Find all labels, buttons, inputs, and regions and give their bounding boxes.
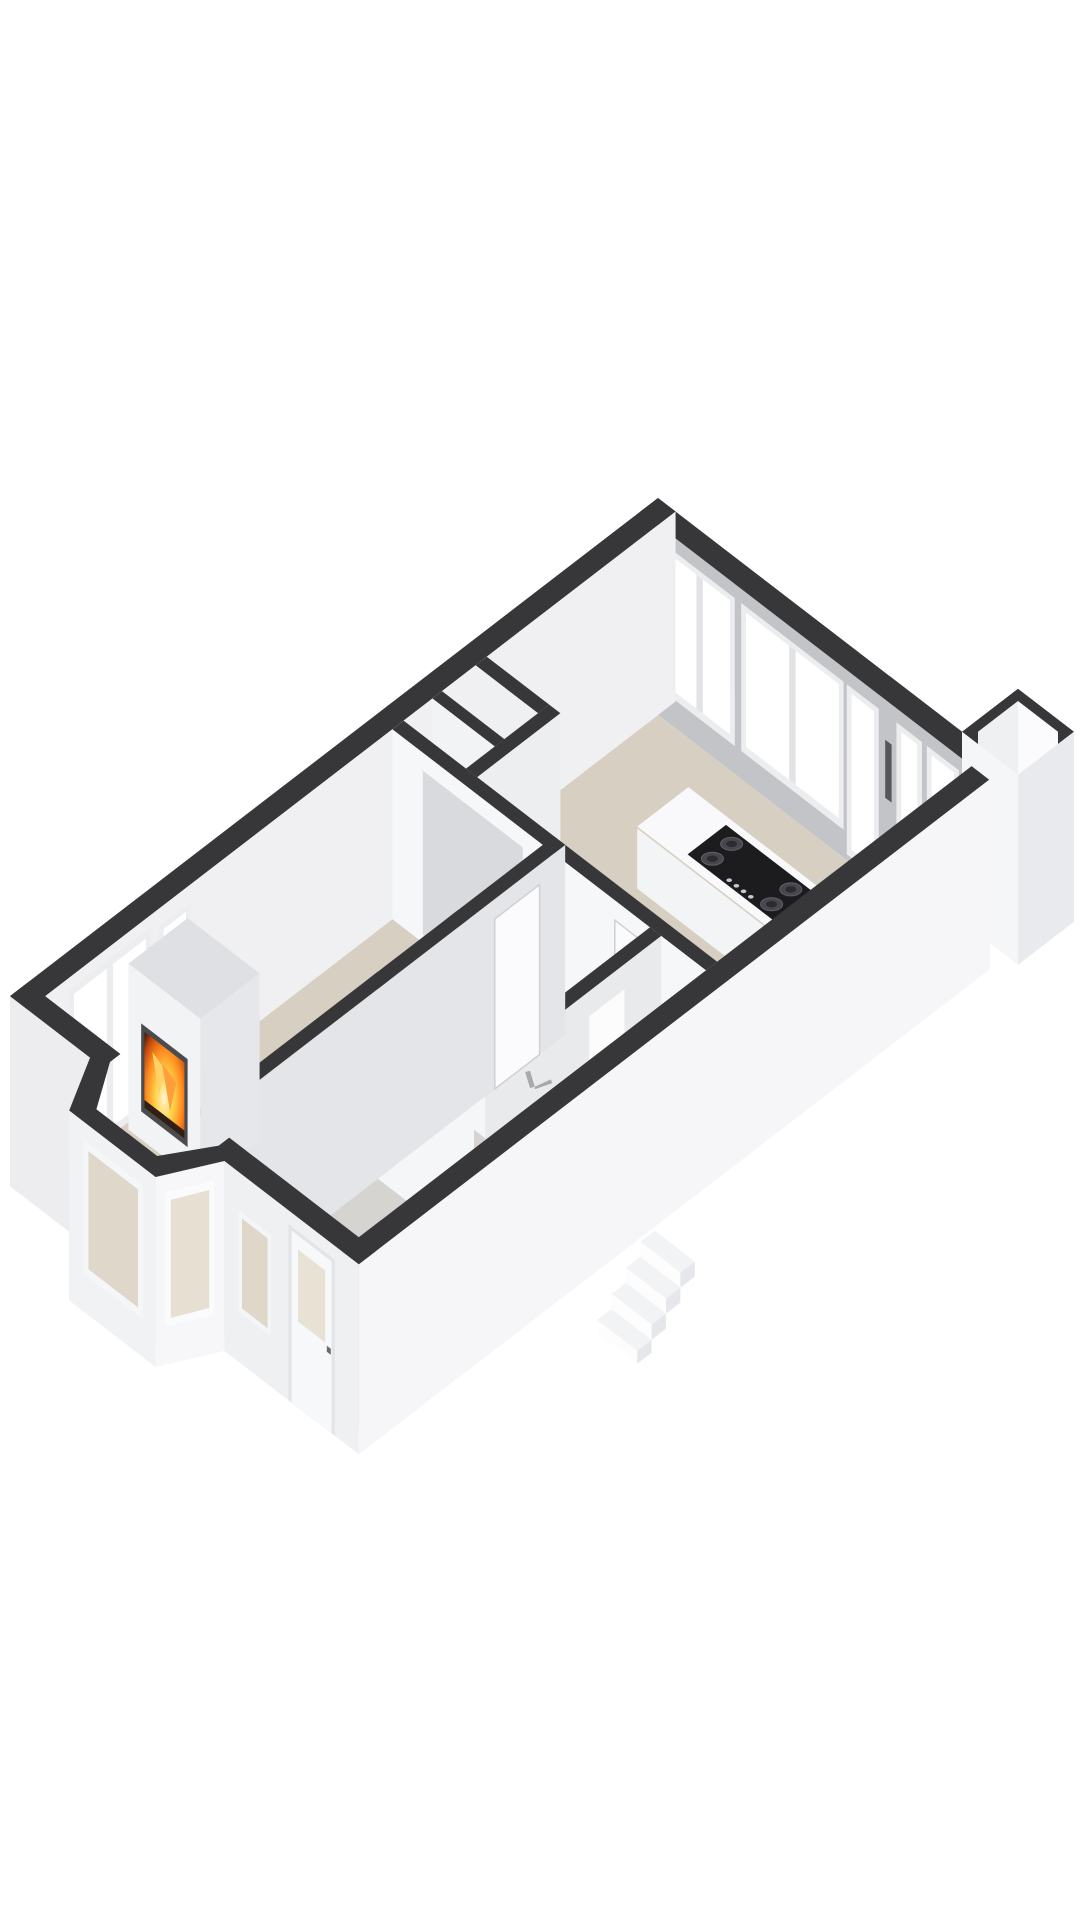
cooktop-knob-3 [741,890,747,894]
burner-2-inner [707,856,718,862]
floorplan-svg [0,0,1080,1920]
ne-window-1-mullion [696,575,702,714]
cooktop-knob-1 [726,878,732,882]
bay-east-window-glass [171,1190,209,1318]
ne-glass-door-glass [852,694,874,867]
burner-3-inner [785,886,796,892]
floorplan-stage [0,0,1080,1920]
ne-wall-vent [885,740,891,803]
cooktop-knob-2 [734,884,740,888]
ne-window-2-mullion [789,646,795,785]
cooktop-knob-4 [748,895,754,899]
burner-4-inner [766,901,777,907]
hall-door [495,885,540,1090]
burner-1-inner [726,841,737,847]
